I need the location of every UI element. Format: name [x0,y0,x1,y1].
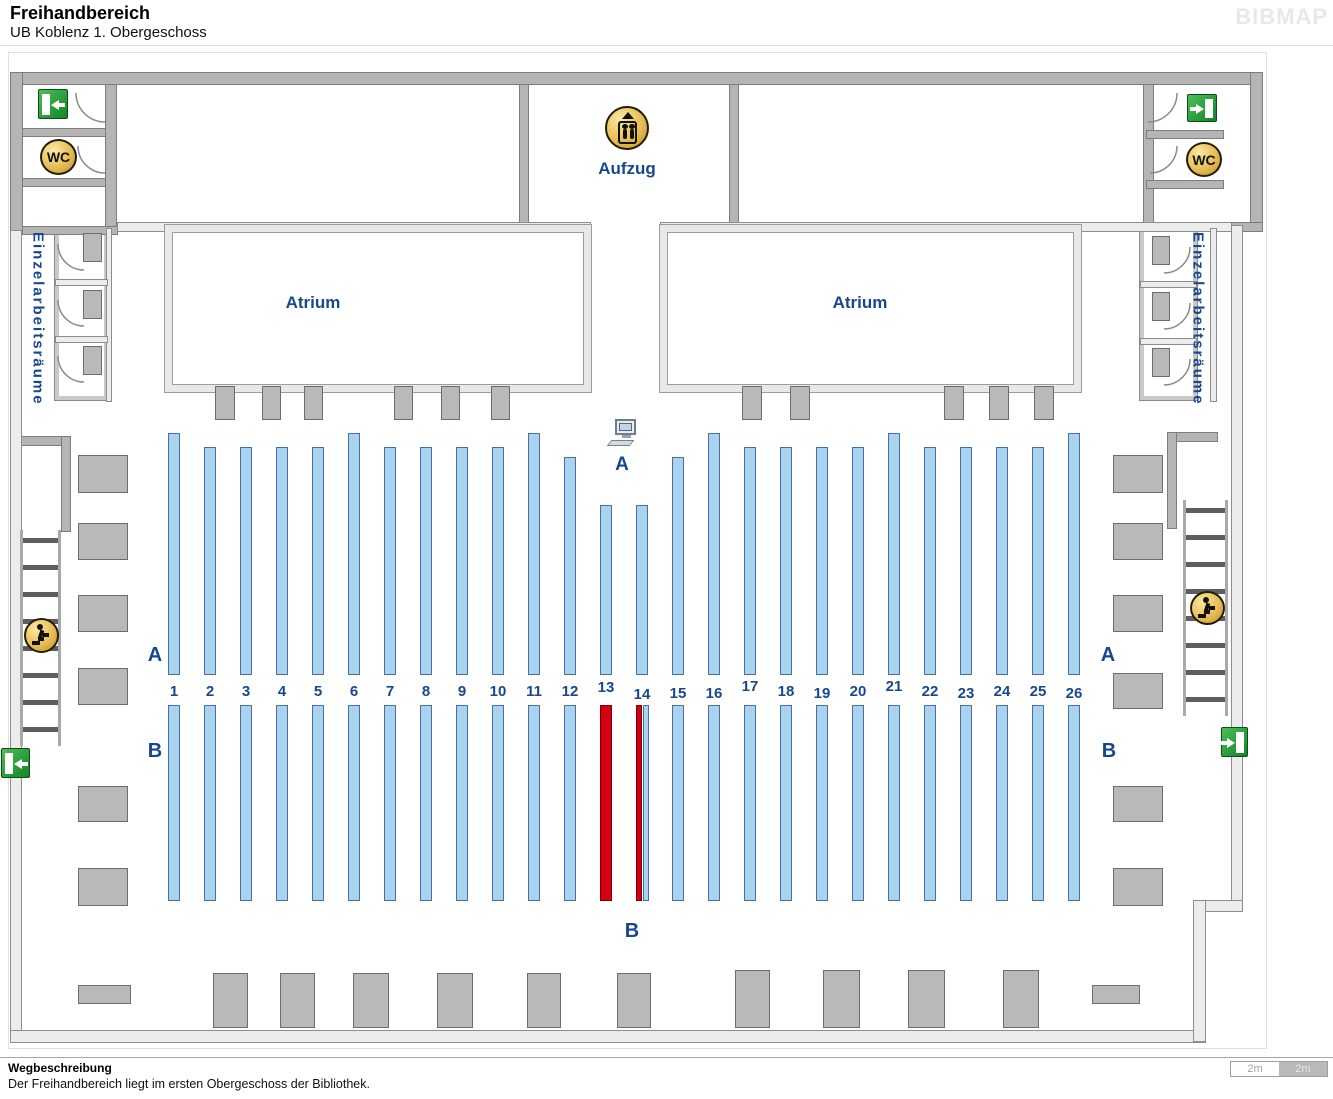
desk [262,386,281,420]
wc-icon: WC [1186,142,1222,177]
desk [1113,595,1163,632]
shelf-a-7 [384,447,396,675]
shelf-a-20 [852,447,864,675]
wc-text: WC [1192,152,1215,168]
door-arc [58,300,84,326]
shelf-b [240,705,252,901]
desk [944,386,964,420]
shelf-a-16 [708,433,720,675]
arrow-bar [59,103,65,107]
door-arc [1164,303,1190,329]
pictogram-part [1209,606,1215,610]
shelf-number-11: 11 [519,682,549,700]
shelf-b [420,705,432,901]
door-arc [78,146,105,173]
desk [1113,673,1163,709]
shelf-number-4: 4 [267,682,297,700]
shelf-b [168,705,180,901]
desk [790,386,810,420]
up-arrow-icon [622,112,634,119]
arrow-bar [22,762,28,766]
shelf-b-14 [643,705,649,901]
shelf-b [672,705,684,901]
shelf-b [744,705,756,901]
shelf-a-18 [780,447,792,675]
arrow-head [1196,104,1204,114]
shelf-a-3 [240,447,252,675]
door-arc [1164,247,1190,273]
desk [78,455,128,493]
shelf-number-26: 26 [1059,684,1089,702]
pictogram-part [37,624,43,630]
shelf-b [996,705,1008,901]
shelf-b [348,705,360,901]
monitor [615,419,636,435]
shelf-b [1032,705,1044,901]
pictogram-part [1203,597,1209,603]
shelf-number-5: 5 [303,682,333,700]
door-arc [1164,359,1190,385]
elevator-icon [605,106,649,150]
desk [83,346,102,375]
person-figure [623,129,627,139]
shelf-b [456,705,468,901]
wall [1250,72,1263,232]
shelf-b [1068,705,1080,901]
door-shape [1236,732,1244,753]
shelf-number-16: 16 [699,684,729,702]
scale-segment: 2m [1231,1062,1279,1076]
stairs-person-icon [24,618,59,653]
shelf-a-14 [636,505,648,675]
desk [527,973,561,1028]
scale-segment: 2m [1279,1062,1327,1076]
shelf-b-13-highlighted [600,705,612,901]
shelf-a-26 [1068,433,1080,675]
shelf-b [708,705,720,901]
shelf-number-14: 14 [627,685,657,703]
shelf-b [492,705,504,901]
desk [441,386,460,420]
shelf-number-24: 24 [987,682,1017,700]
door-shape [5,753,13,774]
directions-heading: Wegbeschreibung [8,1061,112,1075]
shelf-a-9 [456,447,468,675]
wc-text: WC [47,149,70,165]
exit-icon [38,89,68,119]
shelf-b [924,705,936,901]
arrow-head [51,100,59,110]
shelf-a-17 [744,447,756,675]
shelf-number-15: 15 [663,684,693,702]
atrium [165,225,591,392]
pictogram-part [1198,614,1206,618]
wall [729,84,739,226]
shelf-number-12: 12 [555,682,585,700]
desk [304,386,323,420]
wall [10,72,23,235]
desk [989,386,1009,420]
shelf-b [816,705,828,901]
wall [10,1030,1206,1043]
exit-icon [1,748,30,778]
wall [55,279,108,286]
desk [908,970,945,1028]
shelf-number-7: 7 [375,682,405,700]
section-b-right-label: B [1096,737,1122,765]
shelf-b [384,705,396,901]
map-scale: 2m 2m [1230,1061,1328,1077]
shelf-number-25: 25 [1023,682,1053,700]
floorplan-map: AtriumAtrium1234567891011121314151617181… [0,0,1333,1099]
desk [213,973,248,1028]
directions-text: Der Freihandbereich liegt im ersten Ober… [8,1077,370,1091]
wall [10,72,1263,85]
desk [1113,868,1163,906]
shelf-b [204,705,216,901]
shelf-a-23 [960,447,972,675]
pictogram-part [43,633,49,637]
desk [617,973,651,1028]
keyboard [607,440,635,446]
shelf-a-21 [888,433,900,675]
wall [1193,900,1206,1042]
wall [1146,130,1224,139]
desk [1092,985,1140,1004]
shelf-b [960,705,972,901]
door-arc [1150,146,1177,173]
shelf-number-9: 9 [447,682,477,700]
wall [22,128,106,137]
desk [78,668,128,705]
shelf-number-1: 1 [159,682,189,700]
wall [519,84,529,226]
stand [622,435,631,438]
elevator-cab [618,121,637,144]
section-b-center-label: B [618,917,646,945]
shelf-a-4 [276,447,288,675]
shelf-number-17: 17 [735,677,765,695]
einzelarbeitsraeume-right-label: Einzelarbeitsräume [1187,232,1209,577]
bibmap-page: { "header": { "title": "Freihandbereich"… [0,0,1333,1099]
shelf-number-10: 10 [483,682,513,700]
door-shape [42,94,50,115]
pictogram-part [32,641,40,645]
wall [106,228,112,402]
footer-divider [0,1057,1333,1058]
shelf-number-18: 18 [771,682,801,700]
door-arc [58,244,84,270]
shelf-number-13: 13 [591,678,621,696]
aufzug-label: Aufzug [577,158,677,180]
desk [353,973,389,1028]
shelf-a-13 [600,505,612,675]
shelf-b [852,705,864,901]
section-b-left-label: B [141,737,169,765]
shelf-a-5 [312,447,324,675]
shelf-b [312,705,324,901]
shelf-number-6: 6 [339,682,369,700]
desk [78,786,128,822]
shelf-a-6 [348,433,360,675]
door-arc [76,93,105,122]
wall [1231,225,1243,912]
desk [78,868,128,906]
shelf-a-22 [924,447,936,675]
shelf-a-19 [816,447,828,675]
desk [83,233,102,262]
desk [1113,523,1163,560]
desk [1003,970,1039,1028]
desk [823,970,860,1028]
wall [55,336,108,343]
desk [735,970,770,1028]
door-arc [1148,93,1177,122]
shelf-number-19: 19 [807,684,837,702]
desk [437,973,473,1028]
exit-icon [1221,727,1248,757]
shelf-number-3: 3 [231,682,261,700]
wall [1167,432,1177,529]
shelf-a-25 [1032,447,1044,675]
shelf-number-22: 22 [915,682,945,700]
shelf-b [276,705,288,901]
shelf-number-2: 2 [195,682,225,700]
shelf-b [528,705,540,901]
atrium-label: Atrium [800,291,920,315]
desk [394,386,413,420]
screen [619,423,632,431]
section-a-left-label: A [141,641,169,669]
atrium-label: Atrium [253,291,373,315]
desk [280,973,315,1028]
section-a-right-label: A [1095,641,1121,669]
wall [22,178,106,187]
arrow-head [1227,738,1235,748]
shelf-a-8 [420,447,432,675]
desk [742,386,762,420]
section-a-center-label: A [608,452,636,478]
shelf-number-23: 23 [951,684,981,702]
shelf-a-24 [996,447,1008,675]
desk [83,290,102,319]
shelf-a-1 [168,433,180,675]
arrow-head [14,759,22,769]
shelf-b [888,705,900,901]
door-arc [58,356,84,382]
wall [61,436,71,532]
shelf-number-8: 8 [411,682,441,700]
desk [78,595,128,632]
einzelarbeitsraeume-left-label: Einzelarbeitsräume [27,232,49,572]
desk [78,523,128,560]
arrow-bar [1221,741,1227,745]
wall [1146,180,1224,189]
shelf-a-12 [564,457,576,675]
desk [1113,455,1163,493]
stairs-person-icon [1190,591,1225,625]
shelf-number-21: 21 [879,677,909,695]
wall [105,84,117,230]
desk [1113,786,1163,822]
shelf-a-10 [492,447,504,675]
desk [1034,386,1054,420]
shelf-a-11 [528,433,540,675]
wall [1210,228,1217,402]
shelf-a-2 [204,447,216,675]
person-figure [630,129,634,139]
shelf-b-14-highlighted [636,705,642,901]
wc-icon: WC [40,139,77,175]
desk [78,985,131,1004]
desk [491,386,510,420]
shelf-b [780,705,792,901]
desk [215,386,235,420]
shelf-number-20: 20 [843,682,873,700]
door-shape [1205,99,1213,118]
shelf-a-15 [672,457,684,675]
computer-icon [608,419,642,449]
shelf-b [564,705,576,901]
arrow-bar [1190,107,1196,111]
exit-icon [1187,94,1217,122]
